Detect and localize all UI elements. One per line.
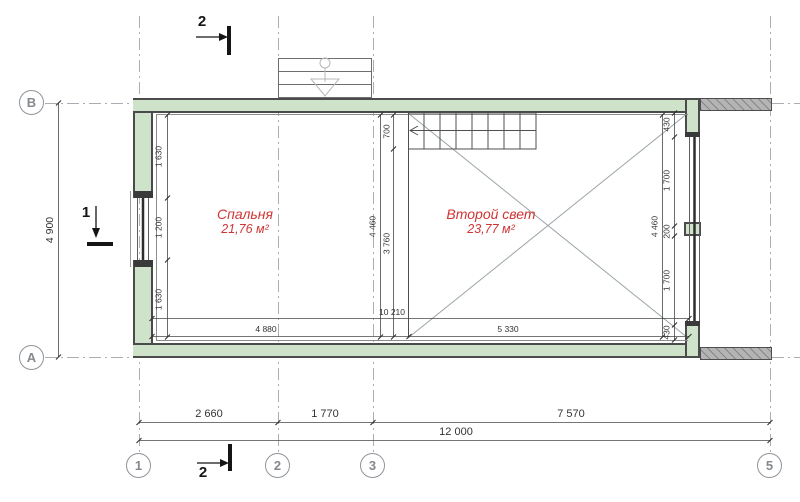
dim-label-stair-to-wall: 3 760 bbox=[382, 221, 393, 267]
dim-label-span-1-2: 2 660 bbox=[179, 408, 239, 421]
room-name: Второй свет bbox=[431, 206, 551, 222]
entry-arrow-icon bbox=[311, 58, 339, 96]
room-area: 23,77 м² bbox=[431, 222, 551, 237]
dim-label-inner-width: 10 210 bbox=[365, 307, 419, 318]
window-east bbox=[685, 132, 700, 326]
dim-label-inner-depth-left: 4 460 bbox=[368, 204, 379, 250]
room-label-second-light: Второй свет 23,77 м² bbox=[431, 206, 551, 237]
dim-label-overall-depth: 4 900 bbox=[44, 202, 56, 258]
grid-bubble-A: А bbox=[19, 345, 44, 370]
dim-label-inner-depth-right: 4 460 bbox=[650, 204, 661, 250]
section-label-1-left: 1 bbox=[77, 204, 95, 222]
dim-label-overall-width: 12 000 bbox=[426, 426, 486, 439]
room-area: 21,76 м² bbox=[185, 222, 305, 237]
grid-bubble-2: 2 bbox=[265, 453, 290, 478]
dim-label-span-2-3: 1 770 bbox=[295, 408, 355, 421]
dim-label-west-chain-bottom: 1 630 bbox=[154, 277, 165, 323]
dim-label-east-chain-bottom: 430 bbox=[662, 310, 673, 356]
dim-label-span-3-5: 7 570 bbox=[541, 408, 601, 421]
plan-linework bbox=[0, 0, 800, 502]
floor-plan-canvas: В А 1 2 3 5 2 2 1 Спальня 21,76 м² Второ… bbox=[0, 0, 800, 502]
dim-label-east-chain-upper: 1 700 bbox=[662, 158, 673, 204]
dim-label-east-chain-top: 430 bbox=[662, 102, 673, 148]
section-label-2-bottom: 2 bbox=[194, 464, 212, 482]
dim-label-second-light-width: 5 330 bbox=[481, 324, 535, 335]
grid-bubble-3: 3 bbox=[360, 453, 385, 478]
room-name: Спальня bbox=[185, 206, 305, 222]
room-label-bedroom: Спальня 21,76 м² bbox=[185, 206, 305, 237]
grid-bubble-5: 5 bbox=[757, 453, 782, 478]
grid-bubble-B: В bbox=[19, 90, 44, 115]
dim-label-east-chain-lower: 1 700 bbox=[662, 258, 673, 304]
grid-bubble-1: 1 bbox=[126, 453, 151, 478]
dim-label-west-chain-top: 1 630 bbox=[154, 134, 165, 180]
section-label-2-top: 2 bbox=[193, 13, 211, 31]
dim-label-west-chain-window: 1 200 bbox=[154, 205, 165, 251]
dim-label-bedroom-width: 4 880 bbox=[239, 324, 293, 335]
window-west bbox=[131, 191, 154, 267]
dim-label-stair-landing: 700 bbox=[382, 109, 393, 155]
dim-label-east-chain-mid: 200 bbox=[662, 209, 673, 255]
